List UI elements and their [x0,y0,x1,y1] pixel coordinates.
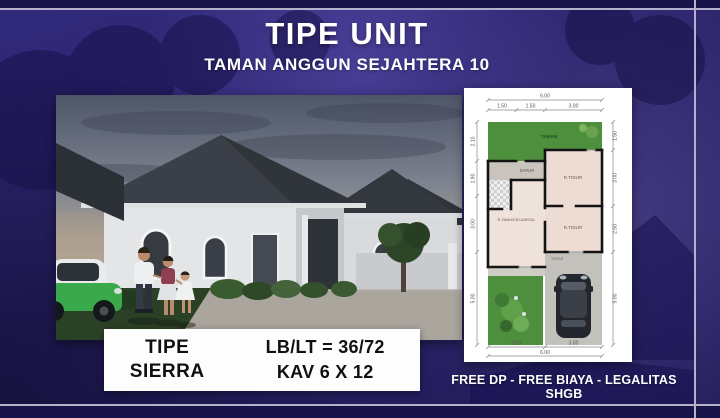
header: TIPE UNIT TAMAN ANGGUN SEJAHTERA 10 [0,18,694,75]
label-kitchen: DAPUR [520,168,535,173]
dim-left-2: 1.90 [471,173,477,183]
label-bedroom2: R.TIDUR [564,225,583,230]
top-edge-band [0,0,720,8]
bedroom-floor [545,150,602,252]
frame-line-bottom [0,404,720,406]
house-photo [56,95,462,340]
label-bedroom1: R.TIDUR [564,175,583,180]
bathroom-floor [488,180,511,209]
page-title: TIPE UNIT [0,18,694,51]
type-name: SIERRA [104,360,230,384]
dim-left-1: 2.10 [471,136,477,146]
frame-line-top [0,8,720,10]
frame-line-right [694,0,696,418]
label-porch: TERAS [551,257,564,261]
dim-top-1: 1.50 [497,104,507,110]
label-garden: TAMAN [541,134,558,139]
gate-pillar [448,243,457,290]
garden-bush [586,126,598,138]
dim-right-2: 3.00 [613,173,619,183]
front-door [252,234,278,290]
size-spec: LB/LT = 36/72 [230,335,420,360]
dim-right-3: 2.50 [613,224,619,234]
page-subtitle: TAMAN ANGGUN SEJAHTERA 10 [0,55,694,75]
spec-column: LB/LT = 36/72 KAV 6 X 12 [230,335,420,385]
dim-top-2: 1.50 [526,104,536,110]
dim-right-1: 1.50 [613,131,619,141]
floorplan-drawing: TAMAN DAPUR R.TIDUR R.TIDUR R.TAMU/KELUA… [464,88,632,362]
house-render [56,95,462,340]
carport-shade [306,219,338,290]
type-info-box: TIPE SIERRA LB/LT = 36/72 KAV 6 X 12 [104,329,420,391]
dim-bottom-1: 3.00 [511,341,521,347]
dim-bottom-total: 6.00 [540,350,550,356]
dim-left-4: 5.00 [471,293,477,303]
dim-right-4: 5.00 [613,293,619,303]
kav-spec: KAV 6 X 12 [230,360,420,385]
bottom-edge-band [0,406,720,418]
poster: TIPE UNIT TAMAN ANGGUN SEJAHTERA 10 [0,0,720,418]
promo-text: FREE DP - FREE BIAYA - LEGALITAS SHGB [436,373,692,401]
kitchen-floor [488,161,545,180]
dim-left-3: 3.00 [471,219,477,229]
carport-car [554,274,593,338]
dim-bottom-2: 3.00 [569,341,579,347]
dim-top-total: 6.00 [540,94,550,100]
arched-window [204,237,226,278]
front-path [488,267,545,276]
type-label: TIPE [104,336,230,360]
type-column: TIPE SIERRA [104,336,230,384]
dim-top-3: 3.00 [569,104,579,110]
floorplan-card: TAMAN DAPUR R.TIDUR R.TIDUR R.TAMU/KELUA… [464,88,632,362]
label-living: R.TAMU/KELUARGA [498,217,535,222]
